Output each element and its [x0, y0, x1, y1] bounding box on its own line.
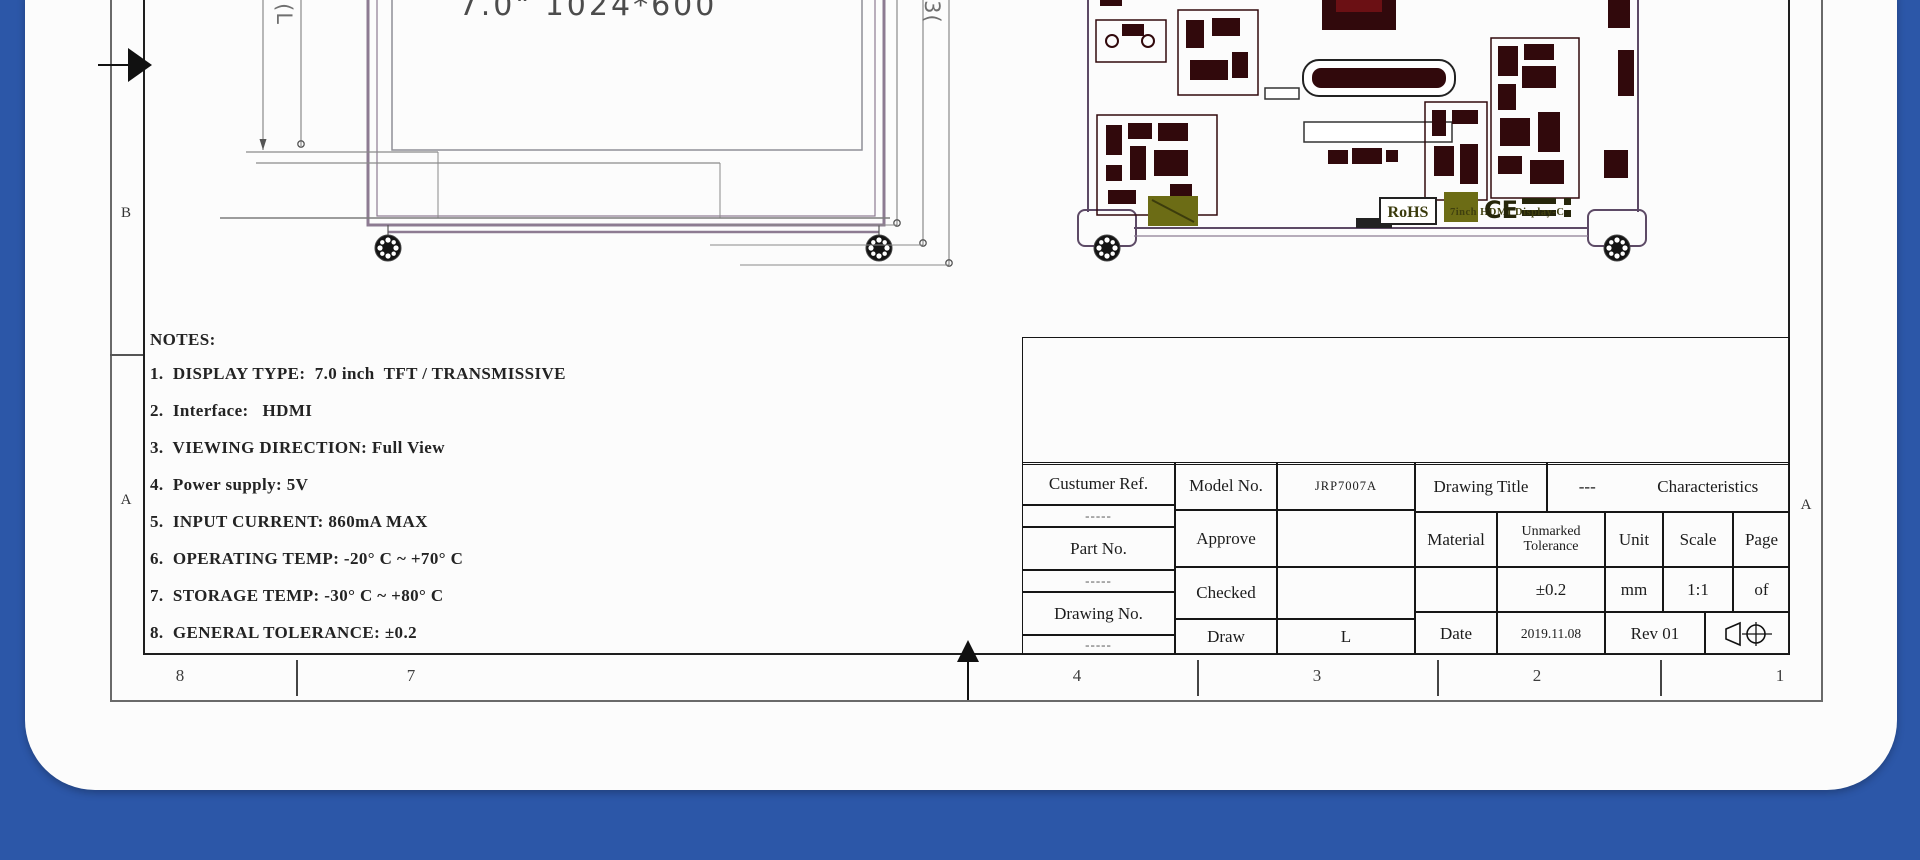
ruler-zone-7: 7 — [391, 666, 431, 686]
note-item: 8. GENERAL TOLERANCE: ±0.2 — [150, 623, 790, 660]
model-no-value: JRP7007A — [1277, 462, 1415, 510]
drawing-title-label: Drawing Title — [1415, 462, 1547, 512]
ruler-tick — [296, 660, 298, 696]
title-block: Custumer Ref. ----- Part No. ----- Drawi… — [1022, 337, 1790, 655]
note-item: 1. DISPLAY TYPE: 7.0 inch TFT / TRANSMIS… — [150, 364, 790, 401]
model-no-label: Model No. — [1175, 462, 1277, 510]
draw-label: Draw — [1175, 619, 1277, 655]
ruler-zone-4: 4 — [1057, 666, 1097, 686]
pcb-rear-drawing: 7inch HDMI Display-C RoHS CE — [1060, 0, 1680, 290]
ce-mark: CE — [1484, 196, 1518, 224]
tolerance-value: ±0.2 — [1497, 567, 1605, 612]
mounting-screw — [1094, 235, 1120, 261]
note-item: 6. OPERATING TEMP: -20° C ~ +70° C — [150, 549, 790, 586]
drawing-no-label: Drawing No. — [1022, 592, 1175, 635]
rohs-label: RoHS — [1388, 204, 1429, 221]
unit-value: mm — [1605, 567, 1663, 612]
approve-label: Approve — [1175, 510, 1277, 567]
pcb-components — [1096, 0, 1634, 228]
note-item: 4. Power supply: 5V — [150, 475, 790, 512]
checked-value — [1277, 567, 1415, 619]
drawing-title-text: Characteristics — [1657, 477, 1758, 497]
note-item: 5. INPUT CURRENT: 860mA MAX — [150, 512, 790, 549]
customer-ref-value: ----- — [1022, 505, 1175, 527]
zone-letter-b: B — [111, 205, 141, 222]
drawing-title-value: --- Characteristics — [1547, 462, 1790, 512]
customer-ref-label: Custumer Ref. — [1022, 462, 1175, 505]
dim-height-lcd: 85.92(L — [272, 0, 296, 25]
mounting-screw — [1604, 235, 1630, 261]
zone-divider-tick — [110, 354, 143, 356]
checked-label: Checked — [1175, 567, 1277, 619]
approve-value — [1277, 510, 1415, 567]
draw-value: L — [1277, 619, 1415, 655]
scale-value: 1:1 — [1663, 567, 1733, 612]
dim-width-outline: 120.03( — [920, 0, 944, 24]
part-no-label: Part No. — [1022, 527, 1175, 570]
drawing-no-value: ----- — [1022, 635, 1175, 655]
drawing-title-dash: --- — [1579, 477, 1596, 497]
page: B A A 8 7 4 3 2 1 7.0" 1024*600 — [0, 0, 1920, 860]
display-front-drawing: 7.0" 1024*600 89.5 85.92(L 106.8 115.0 1… — [200, 0, 1050, 290]
notes-section: NOTES: 1. DISPLAY TYPE: 7.0 inch TFT / T… — [150, 330, 790, 660]
notes-title: NOTES: — [150, 330, 790, 364]
material-value — [1415, 567, 1497, 612]
ruler-tick — [1437, 660, 1439, 696]
note-item: 3. VIEWING DIRECTION: Full View — [150, 438, 790, 475]
third-angle-projection-icon — [1722, 620, 1774, 648]
date-label: Date — [1415, 612, 1497, 655]
rev-value: Rev 01 — [1605, 612, 1705, 655]
screen-size-label: 7.0" 1024*600 — [459, 0, 718, 23]
title-block-empty-area — [1022, 337, 1790, 465]
material-label: Material — [1415, 512, 1497, 567]
ruler-zone-2: 2 — [1517, 666, 1557, 686]
ruler-tick — [1197, 660, 1199, 696]
mounting-screw — [375, 235, 401, 261]
note-item: 7. STORAGE TEMP: -30° C ~ +80° C — [150, 586, 790, 623]
unmarked-tolerance-label: Unmarked Tolerance — [1497, 512, 1605, 567]
ruler-tick — [1660, 660, 1662, 696]
date-value: 2019.11.08 — [1497, 612, 1605, 655]
zone-letter-a-left: A — [111, 492, 141, 509]
part-no-value: ----- — [1022, 570, 1175, 592]
unit-label: Unit — [1605, 512, 1663, 567]
bottom-centering-mark-icon — [967, 660, 969, 700]
ruler-zone-8: 8 — [160, 666, 200, 686]
zone-letter-a-right: A — [1791, 497, 1821, 514]
mounting-screw — [866, 235, 892, 261]
display-module-outline — [368, 0, 884, 225]
left-centering-mark-icon — [98, 64, 130, 66]
ruler-zone-1: 1 — [1760, 666, 1800, 686]
ruler-zone-3: 3 — [1297, 666, 1337, 686]
page-label: Page — [1733, 512, 1790, 567]
scale-label: Scale — [1663, 512, 1733, 567]
page-value: of — [1733, 567, 1790, 612]
note-item: 2. Interface: HDMI — [150, 401, 790, 438]
projection-symbol-cell — [1705, 612, 1790, 655]
